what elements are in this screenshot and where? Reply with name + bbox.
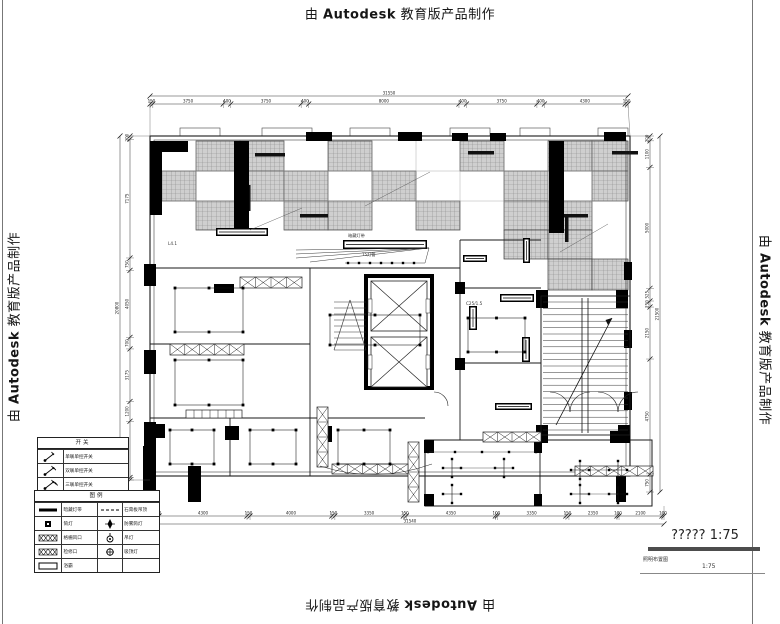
light-dot [363,429,366,432]
light-dot [427,451,429,453]
tile-dark-strip [612,151,638,155]
light-dot [242,287,245,290]
annotation-text: L4.1 [168,241,177,246]
dim-label: 3350 [364,511,375,516]
light-dot [242,331,245,334]
elevator-door [368,355,372,369]
dim-label: 5000 [645,222,650,233]
legend-label: 浴霸 [61,559,96,572]
dim-label: 8000 [379,99,390,104]
light-dot [451,476,453,478]
dim-label: 2150 [645,327,650,338]
open-rect-icon [38,560,58,572]
light-dot [626,493,628,495]
dim-label: 400 [301,99,309,104]
grille-strip [186,410,242,418]
column-block [150,141,162,215]
light-dot [174,287,177,290]
dim-label: 700 [125,339,130,347]
light-dot [374,344,377,347]
legend-label: 双联单控开关 [63,464,128,477]
light-dot [191,463,194,466]
legend-label: 检修口 [61,545,96,558]
light-dot [337,463,340,466]
light-dot [512,467,514,469]
ceiling-tile [592,141,628,171]
light-dot [369,262,371,264]
ceiling-tile [460,141,504,171]
column-block [225,426,239,440]
stair-well [541,296,630,435]
wiring-loop [338,430,390,464]
dim-label: 1100 [645,149,650,160]
light-dot [413,262,415,264]
stair-stringer [350,300,366,350]
door-arc [570,392,590,412]
door-arc [550,392,570,412]
parapet-tile [520,128,550,136]
wiring-loop [250,430,296,464]
legend-switch-row: 三联单控开关 [38,477,128,491]
light-dot [570,469,572,471]
door-arc [598,392,618,412]
light-dot [617,502,619,504]
legend-symbol-cell [97,545,123,558]
light-dot [495,351,498,354]
light-dot [337,429,340,432]
parapet-tile [350,128,390,136]
ceiling-tile [372,171,416,201]
column-block [536,290,548,308]
door-arc [434,392,448,406]
light-dot [508,451,510,453]
light-dot [272,463,275,466]
light-dot [460,493,462,495]
light-dot [451,458,453,460]
legend-symbol-cell [97,503,123,516]
light-dot [249,429,252,432]
legend-label: 石膏板吊顶 [122,503,159,516]
legend-switch-header: 开关 [38,438,128,449]
dim-label: 1200 [125,406,130,417]
legend-label: 吊灯 [122,531,159,544]
dim-label: 3750 [183,99,194,104]
dim-label: 7175 [125,193,130,204]
light-dot [442,493,444,495]
light-dot [242,359,245,362]
light-dot [374,314,377,317]
light-dot [535,451,537,453]
dim-label: 3750 [261,99,272,104]
parapet-tile [262,128,312,136]
light-dot [213,463,216,466]
tile-dark-strip [565,216,569,242]
column-block [624,262,632,280]
hatch-strip-icon [38,546,58,558]
light-dot [363,463,366,466]
ceiling-tile [328,141,372,171]
spot-icon [100,518,120,530]
dashed-line-icon [100,504,120,516]
light-dot [213,429,216,432]
tile-dark-strip [468,151,494,155]
dim-label: 150 [564,511,572,516]
dim-total: 20800 [115,301,120,314]
annotation-text: C25/1.5 [466,301,483,306]
light-dot [419,314,422,317]
dim-label: 400 [459,99,467,104]
wiring-loop [175,288,243,332]
legend-label: 暗藏灯带 [61,503,96,516]
title-underline [648,547,760,551]
light-dot [419,344,422,347]
wiring-loop [175,360,243,405]
legend-symbol-cell [35,545,61,558]
switch-1-icon [41,451,61,463]
light-dot [451,502,453,504]
light-dot [174,359,177,362]
title-rule [640,573,765,574]
elevator-door [426,299,430,313]
light-dot [442,467,444,469]
light-dot [524,317,527,320]
column-block [604,132,626,141]
column-block [534,494,542,506]
light-dot [295,429,298,432]
light-dot [524,351,527,354]
light-dot [208,331,211,334]
legend-label: 防雾筒灯 [122,517,159,530]
tile-dark-strip [255,153,285,157]
ceiling-tile [504,201,548,230]
dim-label: 4300 [580,99,591,104]
drawing-name: 照明布置图 [643,556,668,563]
legend-row: 筒灯防雾筒灯 [35,516,159,530]
light-dot [503,476,505,478]
legend-row: 检修口吸顶灯 [35,544,159,558]
light-dot [389,429,392,432]
dim-label: 3175 [125,370,130,381]
tile-dark-strip [560,214,588,218]
dim-label: 2100 [635,511,646,516]
dim-label: 100 [659,511,667,516]
light-dot [454,451,456,453]
light-dot [467,317,470,320]
column-block [144,264,156,286]
ceiling-tile [284,171,328,201]
column-block [398,132,422,141]
column-block [144,350,156,374]
ceiling-tile [196,141,240,171]
column-block [624,330,632,348]
annotation-text: T5灯管 [361,251,376,258]
dim-label: 750 [125,260,130,268]
dim-total: 31540 [404,519,417,524]
legend-label: 吸顶灯 [122,545,159,558]
dim-total: 31550 [383,91,396,96]
elevator-door [368,299,372,313]
light-dot [617,484,619,486]
column-block [306,132,332,141]
light-dot [242,404,245,407]
legend-symbol-cell [38,450,63,463]
light-dot [329,314,332,317]
light-dot [347,262,349,264]
legend-row: 浴霸 [35,558,159,572]
legend-switch-table: 开关 单联单控开关双联单控开关三联单控开关 [37,437,129,492]
dim-label: 4000 [286,511,297,516]
light-dot [169,429,172,432]
ceiling-lamp-icon [100,546,120,558]
light-dot [295,463,298,466]
pendant-icon [100,532,120,544]
column-block [452,133,468,141]
dim-label: 4300 [198,511,209,516]
column-block [616,290,628,308]
dim-label: 4350 [446,511,457,516]
legend-symbol-cell [35,503,61,516]
dim-label: 150 [623,99,631,104]
light-dot [208,287,211,290]
column-block [234,141,249,233]
light-dot [391,262,393,264]
dim-label: 150 [401,511,409,516]
ceiling-tile [592,259,628,290]
light-dot [503,458,505,460]
light-dot [272,429,275,432]
ceiling-tile [548,259,592,290]
light-dot [579,502,581,504]
column-block [214,284,234,293]
drawing-scale: 1:75 [702,563,715,570]
dim-label: 4050 [125,298,130,309]
legend-symbol-cell [97,531,123,544]
dim-label: 4750 [645,411,650,422]
light-dot [174,404,177,407]
dim-label: 400 [223,99,231,104]
wiring-line [425,248,429,263]
wiring-loop [170,430,214,464]
ceiling-tile [416,201,460,230]
legend-symbol-cell [38,464,63,477]
light-dot [626,469,628,471]
dim-label: 2350 [588,511,599,516]
dim-label: 3350 [527,511,538,516]
light-dot [249,463,252,466]
dim-label: 150 [148,99,156,104]
tile-dark-strip [300,214,328,218]
light-dot [617,478,619,480]
ceiling-tile [592,171,628,201]
parapet-tile [180,128,220,136]
legend-label: 筒灯 [61,517,96,530]
ceiling-tile [196,201,240,230]
light-dot [358,262,360,264]
legend-switch-row: 单联单控开关 [38,449,128,463]
dim-label: 200 [125,133,130,141]
dim-label: 250 [645,300,650,308]
light-dot [579,460,581,462]
dim-total: 21500 [655,307,660,320]
legend-symbol-cell [35,531,61,544]
legend-main-header: 图例 [35,491,159,502]
dim-label: 150 [245,511,253,516]
light-dot [174,331,177,334]
light-dot [617,460,619,462]
dim-label: 525 [645,290,650,298]
light-dot [208,359,211,362]
dim-label: 750 [645,479,650,487]
column-block [455,358,465,370]
legend-symbol-cell [35,517,61,530]
dim-label: 100 [493,511,501,516]
light-dot [389,463,392,466]
column-block [153,424,165,438]
thick-line-icon [38,504,58,516]
legend-symbol-cell [35,559,61,572]
switch-3-icon [41,479,61,491]
light-dot [380,262,382,264]
black-square-icon [38,518,58,530]
light-dot [495,317,498,320]
dim-label: 150 [330,511,338,516]
ceiling-tile [548,230,592,259]
column-block [610,431,624,443]
annotation-text: 暗藏灯带 [348,232,365,239]
light-dot [329,344,332,347]
light-dot [191,429,194,432]
legend-label: 格栅风口 [61,531,96,544]
drawing-title: ????? 1:75 [645,528,765,543]
dim-label: 200 [645,134,650,142]
column-block [455,282,465,294]
light-dot [402,262,404,264]
dim-label: 100 [614,511,622,516]
legend-symbol-cell [97,517,123,530]
column-block [424,494,434,506]
light-dot [169,463,172,466]
column-block [490,133,506,141]
light-dot [481,451,483,453]
hatch-strip-icon [38,532,58,544]
column-block [188,466,201,502]
ceiling-tile [504,171,548,201]
switch-2-icon [41,465,61,477]
legend-main-table: 图例 暗藏灯带石膏板吊顶筒灯防雾筒灯格栅风口吊灯检修口吸顶灯浴霸 [34,490,160,573]
column-block [549,141,564,233]
dim-label: 3750 [497,99,508,104]
dim-label: 400 [537,99,545,104]
legend-symbol-cell [97,559,123,572]
light-dot [570,493,572,495]
legend-row: 格栅风口吊灯 [35,530,159,544]
light-dot [451,484,453,486]
cad-sheet: 由 Autodesk 教育版产品制作 由 Autodesk 教育版产品制作 由 … [0,0,780,624]
legend-label: 单联单控开关 [63,450,128,463]
ceiling-tile [328,201,372,230]
legend-switch-row: 双联单控开关 [38,463,128,477]
legend-row: 暗藏灯带石膏板吊顶 [35,502,159,516]
light-dot [467,351,470,354]
light-dot [208,404,211,407]
stair-stringer [334,300,350,350]
legend-label [122,559,159,572]
elevator-door [426,355,430,369]
